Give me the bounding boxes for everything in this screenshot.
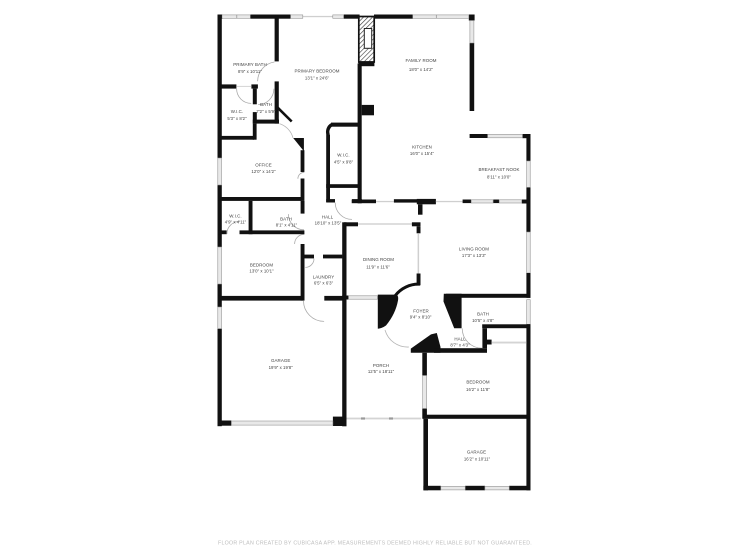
- svg-text:FAMILY ROOM: FAMILY ROOM: [406, 58, 437, 63]
- svg-text:HALL: HALL: [454, 337, 466, 342]
- svg-text:16'2" x 10'11": 16'2" x 10'11": [464, 457, 491, 462]
- svg-text:18'10" x 13'5": 18'10" x 13'5": [315, 221, 342, 226]
- svg-text:GARAGE: GARAGE: [467, 450, 486, 455]
- svg-text:W.I.C.: W.I.C.: [229, 214, 241, 219]
- svg-text:PRIMARY BEDROOM: PRIMARY BEDROOM: [295, 69, 340, 74]
- svg-text:GARAGE: GARAGE: [271, 358, 290, 363]
- svg-text:18'0" x 14'2": 18'0" x 14'2": [409, 67, 434, 72]
- svg-text:12'0" x 14'2": 12'0" x 14'2": [251, 169, 276, 174]
- svg-text:13'1" x 24'6": 13'1" x 24'6": [305, 76, 330, 81]
- svg-text:11'9" x 11'6": 11'9" x 11'6": [366, 265, 390, 270]
- svg-text:KITCHEN: KITCHEN: [412, 145, 432, 150]
- svg-text:DINING ROOM: DINING ROOM: [363, 257, 394, 262]
- svg-text:BEDROOM: BEDROOM: [250, 263, 274, 268]
- svg-text:PORCH: PORCH: [373, 363, 389, 368]
- svg-text:16'0" x 15'4": 16'0" x 15'4": [410, 151, 435, 156]
- svg-text:HALL: HALL: [322, 215, 334, 220]
- svg-text:12'5" x 18'11": 12'5" x 18'11": [368, 369, 395, 374]
- svg-text:9'4" x 8'10": 9'4" x 8'10": [410, 315, 432, 320]
- svg-text:PRIMARY BATH: PRIMARY BATH: [233, 62, 266, 67]
- svg-text:BATH: BATH: [260, 102, 272, 107]
- svg-text:LAUNDRY: LAUNDRY: [313, 275, 334, 280]
- svg-text:19'9" x 19'8": 19'9" x 19'8": [269, 365, 294, 370]
- svg-text:8'1" x 4'11": 8'1" x 4'11": [276, 223, 298, 228]
- svg-text:W.I.C.: W.I.C.: [337, 153, 349, 158]
- svg-text:LIVING ROOM: LIVING ROOM: [459, 247, 489, 252]
- svg-text:8'7" x 4'3": 8'7" x 4'3": [450, 343, 470, 348]
- svg-text:8'11" x 10'0": 8'11" x 10'0": [487, 175, 511, 180]
- svg-text:4'5" x 9'8": 4'5" x 9'8": [334, 160, 354, 165]
- svg-text:5'3" x 8'2": 5'3" x 8'2": [227, 116, 247, 121]
- svg-text:FLOOR PLAN CREATED BY CUBICASA: FLOOR PLAN CREATED BY CUBICASA APP. MEAS…: [218, 541, 532, 547]
- svg-text:17'3" x 13'3": 17'3" x 13'3": [462, 253, 487, 258]
- svg-text:8'9" x 10'11": 8'9" x 10'11": [238, 69, 262, 74]
- svg-text:16'2" x 11'8": 16'2" x 11'8": [466, 387, 490, 392]
- svg-text:BATH: BATH: [477, 312, 489, 317]
- svg-text:BATH: BATH: [280, 217, 292, 222]
- svg-text:W.I.C.: W.I.C.: [231, 109, 243, 114]
- svg-text:7'2" x 5'9": 7'2" x 5'9": [256, 109, 276, 114]
- svg-text:6'5" x 6'3": 6'5" x 6'3": [314, 281, 334, 286]
- svg-text:BREAKFAST NOOK: BREAKFAST NOOK: [478, 167, 519, 172]
- svg-text:OFFICE: OFFICE: [255, 163, 272, 168]
- svg-text:13'0" x 10'1": 13'0" x 10'1": [249, 269, 274, 274]
- svg-text:10'5" x 4'8": 10'5" x 4'8": [472, 318, 494, 323]
- svg-text:FOYER: FOYER: [413, 309, 429, 314]
- svg-text:BEDROOM: BEDROOM: [466, 380, 490, 385]
- svg-text:4'9" x 4'11": 4'9" x 4'11": [225, 220, 247, 225]
